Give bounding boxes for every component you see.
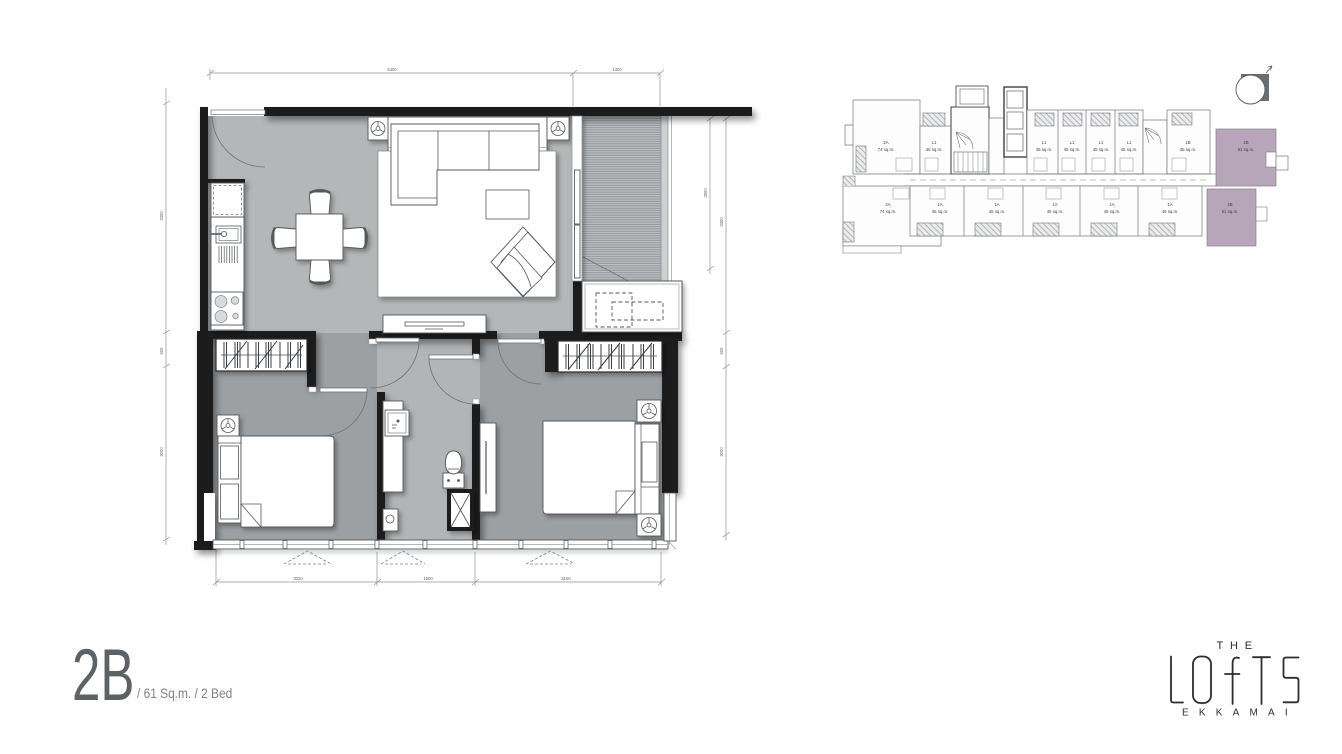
svg-text:3300: 3300: [719, 217, 724, 227]
svg-text:2800: 2800: [703, 188, 708, 198]
svg-text:3100: 3100: [561, 576, 571, 581]
svg-text:L1: L1: [932, 140, 937, 145]
svg-text:74 sq.m.: 74 sq.m.: [878, 147, 894, 152]
svg-text:2A: 2A: [885, 202, 890, 207]
svg-text:74 sq.m.: 74 sq.m.: [880, 209, 896, 214]
svg-text:1600: 1600: [423, 576, 433, 581]
svg-text:1A: 1A: [937, 202, 942, 207]
svg-text:45 sq.m.: 45 sq.m.: [1047, 209, 1063, 214]
svg-text:L1: L1: [1070, 140, 1075, 145]
svg-text:600: 600: [719, 347, 724, 355]
svg-text:45 sq.m.: 45 sq.m.: [926, 147, 942, 152]
svg-text:1B: 1B: [1185, 140, 1190, 145]
svg-text:45 sq.m.: 45 sq.m.: [1162, 209, 1178, 214]
svg-text:45 sq.m.: 45 sq.m.: [1064, 147, 1080, 152]
svg-text:1400: 1400: [612, 67, 622, 72]
svg-text:3000: 3000: [719, 447, 724, 457]
svg-text:45 sq.m.: 45 sq.m.: [989, 209, 1005, 214]
svg-text:600: 600: [159, 347, 164, 355]
svg-text:2A: 2A: [883, 140, 888, 145]
svg-text:1A: 1A: [1052, 202, 1057, 207]
svg-text:L1: L1: [1042, 140, 1047, 145]
svg-text:THE: THE: [1217, 640, 1259, 652]
svg-text:45 sq.m.: 45 sq.m.: [932, 209, 948, 214]
svg-text:35 sq.m.: 35 sq.m.: [1180, 147, 1196, 152]
svg-text:L1: L1: [1099, 140, 1104, 145]
svg-text:45 sq.m.: 45 sq.m.: [1104, 209, 1120, 214]
svg-text:EKKAMAI: EKKAMAI: [1182, 708, 1298, 719]
svg-text:2B: 2B: [1243, 140, 1248, 145]
svg-text:3300: 3300: [159, 211, 164, 221]
svg-text:1A: 1A: [1167, 202, 1172, 207]
svg-text:1A: 1A: [1109, 202, 1114, 207]
svg-text:/ 61 Sq.m. / 2 Bed: / 61 Sq.m. / 2 Bed: [137, 685, 232, 701]
svg-text:3000: 3000: [159, 447, 164, 457]
svg-text:1A: 1A: [994, 202, 999, 207]
svg-text:2B: 2B: [72, 635, 134, 716]
svg-text:61 sq.m.: 61 sq.m.: [1222, 209, 1238, 214]
svg-text:45 sq.m.: 45 sq.m.: [1036, 147, 1052, 152]
svg-text:L1: L1: [1127, 140, 1132, 145]
svg-text:61 sq.m.: 61 sq.m.: [1238, 147, 1254, 152]
svg-text:45 sq.m.: 45 sq.m.: [1121, 147, 1137, 152]
svg-text:45 sq.m.: 45 sq.m.: [1093, 147, 1109, 152]
svg-text:5400: 5400: [387, 67, 397, 72]
svg-text:2B: 2B: [1227, 202, 1232, 207]
svg-text:3010: 3010: [293, 576, 303, 581]
